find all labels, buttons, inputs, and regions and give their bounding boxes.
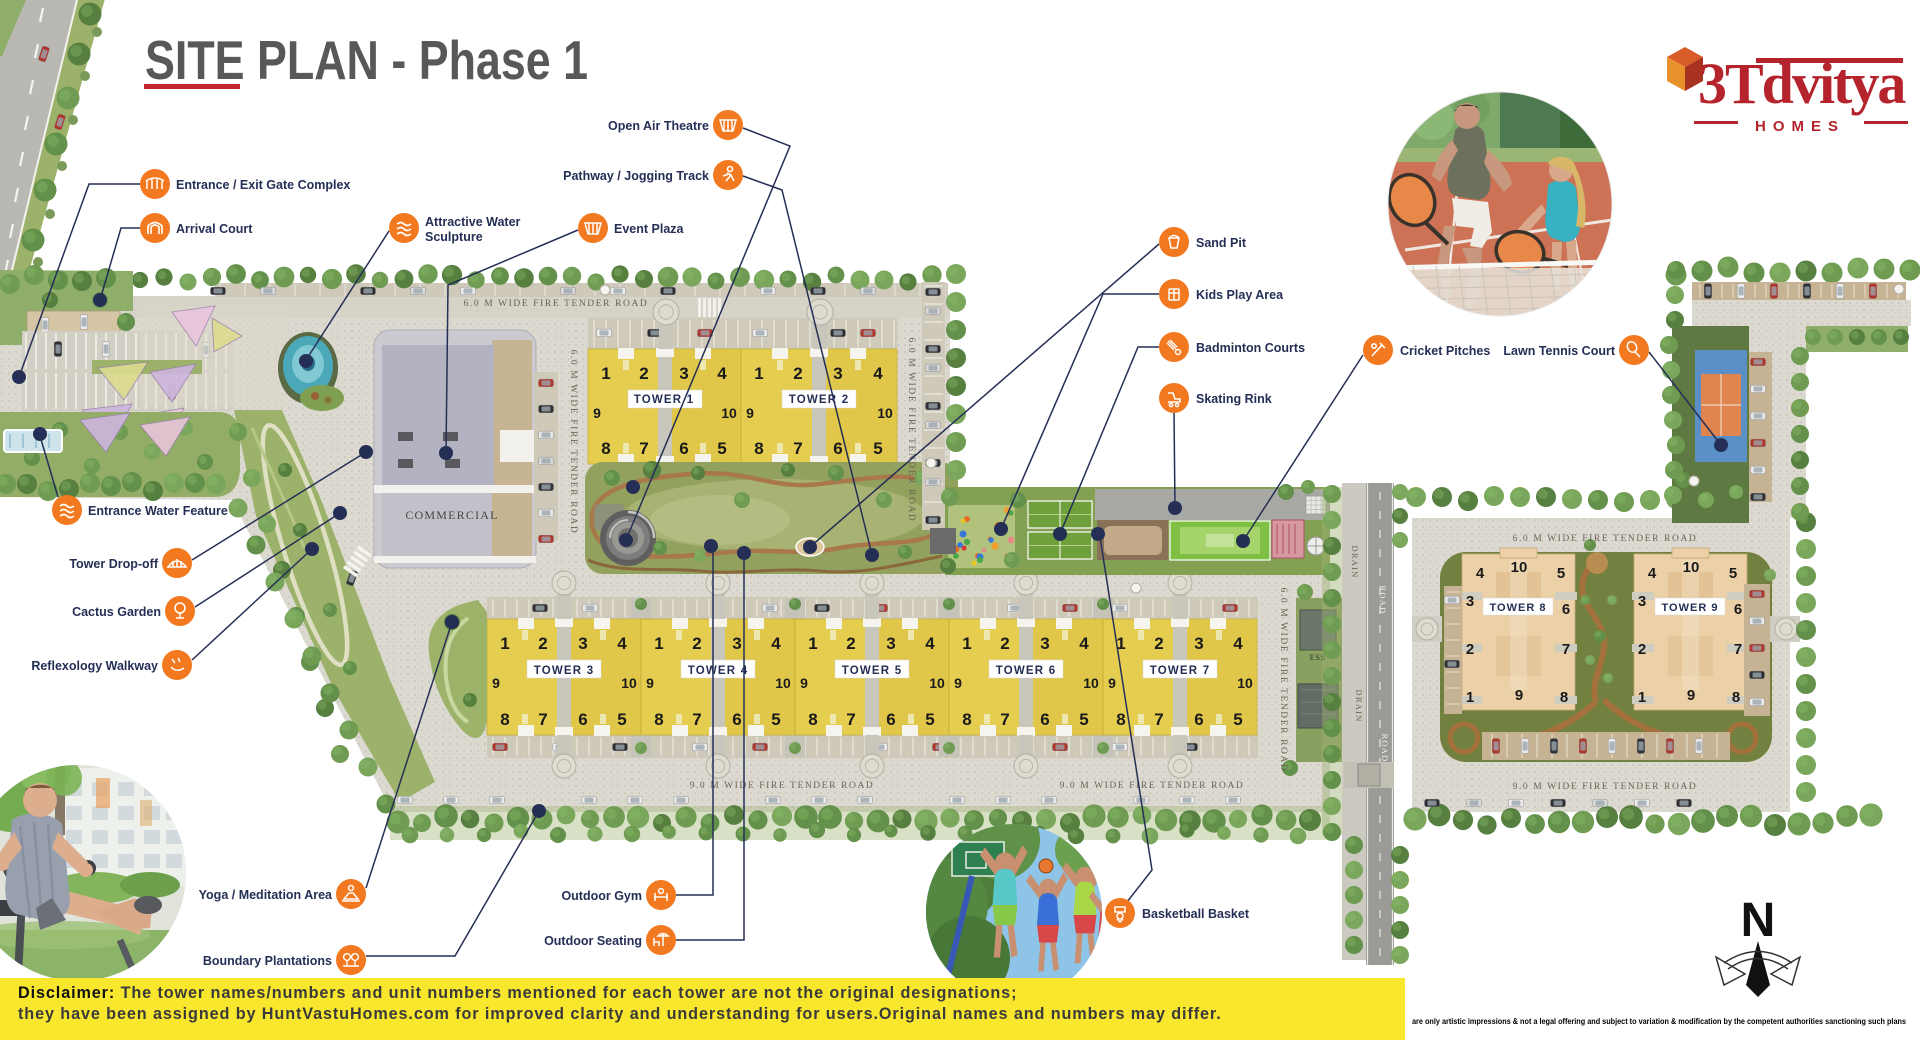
svg-text:8: 8 (601, 439, 610, 458)
svg-text:2: 2 (639, 364, 648, 383)
svg-text:4: 4 (873, 364, 883, 383)
svg-text:SITE PLAN - Phase 1: SITE PLAN - Phase 1 (145, 29, 588, 91)
svg-text:9: 9 (646, 675, 654, 691)
svg-text:10: 10 (1083, 675, 1099, 691)
svg-text:1: 1 (754, 364, 763, 383)
svg-text:Outdoor Gym: Outdoor Gym (561, 889, 642, 903)
svg-text:10: 10 (775, 675, 791, 691)
svg-text:TOWER 2: TOWER 2 (789, 394, 850, 406)
svg-text:Disclaimer: The tower names/nu: Disclaimer: The tower names/numbers and … (18, 984, 1017, 1002)
svg-text:8: 8 (1732, 689, 1740, 706)
svg-text:4: 4 (925, 634, 935, 653)
svg-text:6: 6 (1040, 710, 1049, 729)
svg-text:4: 4 (1648, 565, 1657, 582)
svg-text:Cactus Garden: Cactus Garden (72, 605, 161, 619)
svg-text:10: 10 (1683, 559, 1700, 576)
svg-text:9: 9 (800, 675, 808, 691)
svg-text:5: 5 (925, 710, 934, 729)
svg-text:1: 1 (808, 634, 817, 653)
svg-text:2: 2 (846, 634, 855, 653)
svg-text:9: 9 (1515, 687, 1523, 704)
svg-text:9: 9 (593, 405, 601, 421)
svg-text:2: 2 (1638, 641, 1646, 658)
svg-text:6.0 M WIDE FIRE TENDER ROAD: 6.0 M WIDE FIRE TENDER ROAD (1278, 588, 1288, 773)
svg-text:8: 8 (962, 710, 971, 729)
svg-text:5: 5 (1079, 710, 1088, 729)
svg-text:8: 8 (754, 439, 763, 458)
svg-text:Event Plaza: Event Plaza (614, 222, 685, 236)
svg-text:Reflexology Walkway: Reflexology Walkway (31, 659, 158, 673)
svg-text:2: 2 (538, 634, 547, 653)
svg-text:9.0 M WIDE FIRE TENDER ROAD: 9.0 M WIDE FIRE TENDER ROAD (690, 781, 875, 791)
svg-text:10: 10 (1511, 559, 1528, 576)
svg-text:DRAIN: DRAIN (1350, 546, 1360, 579)
svg-text:6: 6 (732, 710, 741, 729)
svg-text:4: 4 (1476, 565, 1485, 582)
svg-text:Lawn Tennis Court: Lawn Tennis Court (1503, 344, 1615, 358)
svg-text:COMMERCIAL: COMMERCIAL (405, 508, 498, 522)
svg-text:10: 10 (721, 405, 737, 421)
svg-text:4: 4 (617, 634, 627, 653)
svg-text:TOWER 3: TOWER 3 (534, 665, 595, 677)
svg-text:3: 3 (578, 634, 587, 653)
svg-text:2: 2 (1000, 634, 1009, 653)
svg-text:TOWER 8: TOWER 8 (1490, 602, 1547, 614)
svg-text:10: 10 (929, 675, 945, 691)
svg-text:1: 1 (500, 634, 509, 653)
svg-text:3: 3 (679, 364, 688, 383)
svg-text:TOWER 9: TOWER 9 (1662, 602, 1719, 614)
svg-text:TOWER 6: TOWER 6 (996, 665, 1057, 677)
svg-text:Basketball Basket: Basketball Basket (1142, 907, 1250, 921)
svg-text:TOWER 5: TOWER 5 (842, 665, 903, 677)
svg-text:are only artistic impressions: are only artistic impressions & not a le… (1412, 1016, 1906, 1026)
svg-text:7: 7 (1000, 710, 1009, 729)
svg-text:6.0 M WIDE FIRE TENDER ROAD: 6.0 M WIDE FIRE TENDER ROAD (1513, 534, 1698, 544)
svg-text:6: 6 (1194, 710, 1203, 729)
svg-text:Sculpture: Sculpture (425, 230, 483, 244)
svg-text:5: 5 (617, 710, 626, 729)
svg-text:1: 1 (1638, 689, 1646, 706)
svg-text:7: 7 (793, 439, 802, 458)
svg-text:6.0 M WIDE FIRE TENDER ROAD: 6.0 M WIDE FIRE TENDER ROAD (568, 350, 578, 535)
svg-text:ROAD: ROAD (1380, 734, 1390, 763)
svg-text:8: 8 (500, 710, 509, 729)
svg-text:1: 1 (654, 634, 663, 653)
svg-text:N: N (1741, 894, 1776, 947)
svg-text:10: 10 (1237, 675, 1253, 691)
svg-text:3: 3 (1194, 634, 1203, 653)
svg-text:9: 9 (492, 675, 500, 691)
svg-text:Badminton Courts: Badminton Courts (1196, 341, 1305, 355)
svg-text:TOWER 4: TOWER 4 (688, 665, 749, 677)
svg-text:8: 8 (1560, 689, 1568, 706)
svg-text:3: 3 (1466, 593, 1474, 610)
svg-text:5: 5 (717, 439, 726, 458)
svg-text:1: 1 (601, 364, 610, 383)
svg-text:7: 7 (1154, 710, 1163, 729)
svg-text:Sand Pit: Sand Pit (1196, 236, 1247, 250)
svg-text:Skating Rink: Skating Rink (1196, 392, 1272, 406)
svg-text:6: 6 (1562, 601, 1570, 618)
svg-text:Pathway / Jogging Track: Pathway / Jogging Track (563, 169, 709, 183)
svg-text:9: 9 (1687, 687, 1695, 704)
svg-text:2: 2 (692, 634, 701, 653)
svg-text:8: 8 (808, 710, 817, 729)
svg-text:3: 3 (1638, 593, 1646, 610)
svg-text:Cricket Pitches: Cricket Pitches (1400, 344, 1490, 358)
svg-text:5: 5 (1557, 565, 1565, 582)
svg-text:8: 8 (654, 710, 663, 729)
svg-text:6: 6 (679, 439, 688, 458)
svg-text:Arrival Court: Arrival Court (176, 222, 253, 236)
svg-text:9: 9 (1108, 675, 1116, 691)
svg-text:9: 9 (954, 675, 962, 691)
svg-text:2: 2 (1466, 641, 1474, 658)
svg-text:1: 1 (1466, 689, 1474, 706)
svg-text:6.0 M WIDE FIRE TENDER ROAD: 6.0 M WIDE FIRE TENDER ROAD (906, 338, 916, 523)
svg-text:3: 3 (833, 364, 842, 383)
svg-text:TOWER 7: TOWER 7 (1150, 665, 1211, 677)
svg-text:7: 7 (846, 710, 855, 729)
svg-text:3: 3 (1040, 634, 1049, 653)
svg-text:4: 4 (717, 364, 727, 383)
svg-text:2: 2 (1154, 634, 1163, 653)
svg-text:6: 6 (1734, 601, 1742, 618)
svg-text:5: 5 (1729, 565, 1737, 582)
svg-text:5: 5 (771, 710, 780, 729)
svg-text:10: 10 (877, 405, 893, 421)
svg-text:Yoga / Meditation Area: Yoga / Meditation Area (199, 888, 333, 902)
svg-text:ROAD: ROAD (1378, 586, 1388, 615)
svg-text:Entrance Water Feature: Entrance Water Feature (88, 504, 228, 518)
svg-text:7: 7 (692, 710, 701, 729)
svg-text:6: 6 (886, 710, 895, 729)
svg-text:3: 3 (886, 634, 895, 653)
svg-text:5: 5 (873, 439, 882, 458)
svg-text:Tower Drop-off: Tower Drop-off (69, 557, 158, 571)
svg-text:6: 6 (578, 710, 587, 729)
svg-text:7: 7 (538, 710, 547, 729)
svg-text:6: 6 (833, 439, 842, 458)
svg-text:8: 8 (1116, 710, 1125, 729)
svg-text:Attractive Water: Attractive Water (425, 215, 521, 229)
svg-text:they have been assigned by Hun: they have been assigned by HuntVastuHome… (18, 1005, 1222, 1023)
svg-text:7: 7 (1562, 641, 1570, 658)
svg-text:10: 10 (621, 675, 637, 691)
svg-text:5: 5 (1233, 710, 1242, 729)
svg-text:9: 9 (746, 405, 754, 421)
svg-text:9.0 M WIDE FIRE TENDER ROAD: 9.0 M WIDE FIRE TENDER ROAD (1513, 782, 1698, 792)
svg-text:6.0 M WIDE FIRE TENDER ROAD: 6.0 M WIDE FIRE TENDER ROAD (464, 299, 649, 309)
svg-text:4: 4 (771, 634, 781, 653)
svg-text:Kids Play Area: Kids Play Area (1196, 288, 1284, 302)
svg-text:7: 7 (1734, 641, 1742, 658)
svg-text:Entrance / Exit Gate Complex: Entrance / Exit Gate Complex (176, 178, 350, 192)
svg-text:7: 7 (639, 439, 648, 458)
svg-text:Open Air Theatre: Open Air Theatre (608, 119, 709, 133)
svg-text:2: 2 (793, 364, 802, 383)
svg-text:Outdoor Seating: Outdoor Seating (544, 934, 642, 948)
svg-text:4: 4 (1079, 634, 1089, 653)
svg-text:4: 4 (1233, 634, 1243, 653)
svg-text:3: 3 (732, 634, 741, 653)
svg-text:1: 1 (962, 634, 971, 653)
svg-text:HOMES: HOMES (1755, 118, 1845, 135)
svg-text:DRAIN: DRAIN (1354, 690, 1364, 723)
svg-text:TOWER 1: TOWER 1 (634, 394, 695, 406)
svg-text:9.0 M WIDE FIRE TENDER ROAD: 9.0 M WIDE FIRE TENDER ROAD (1060, 781, 1245, 791)
svg-text:Boundary Plantations: Boundary Plantations (203, 954, 332, 968)
